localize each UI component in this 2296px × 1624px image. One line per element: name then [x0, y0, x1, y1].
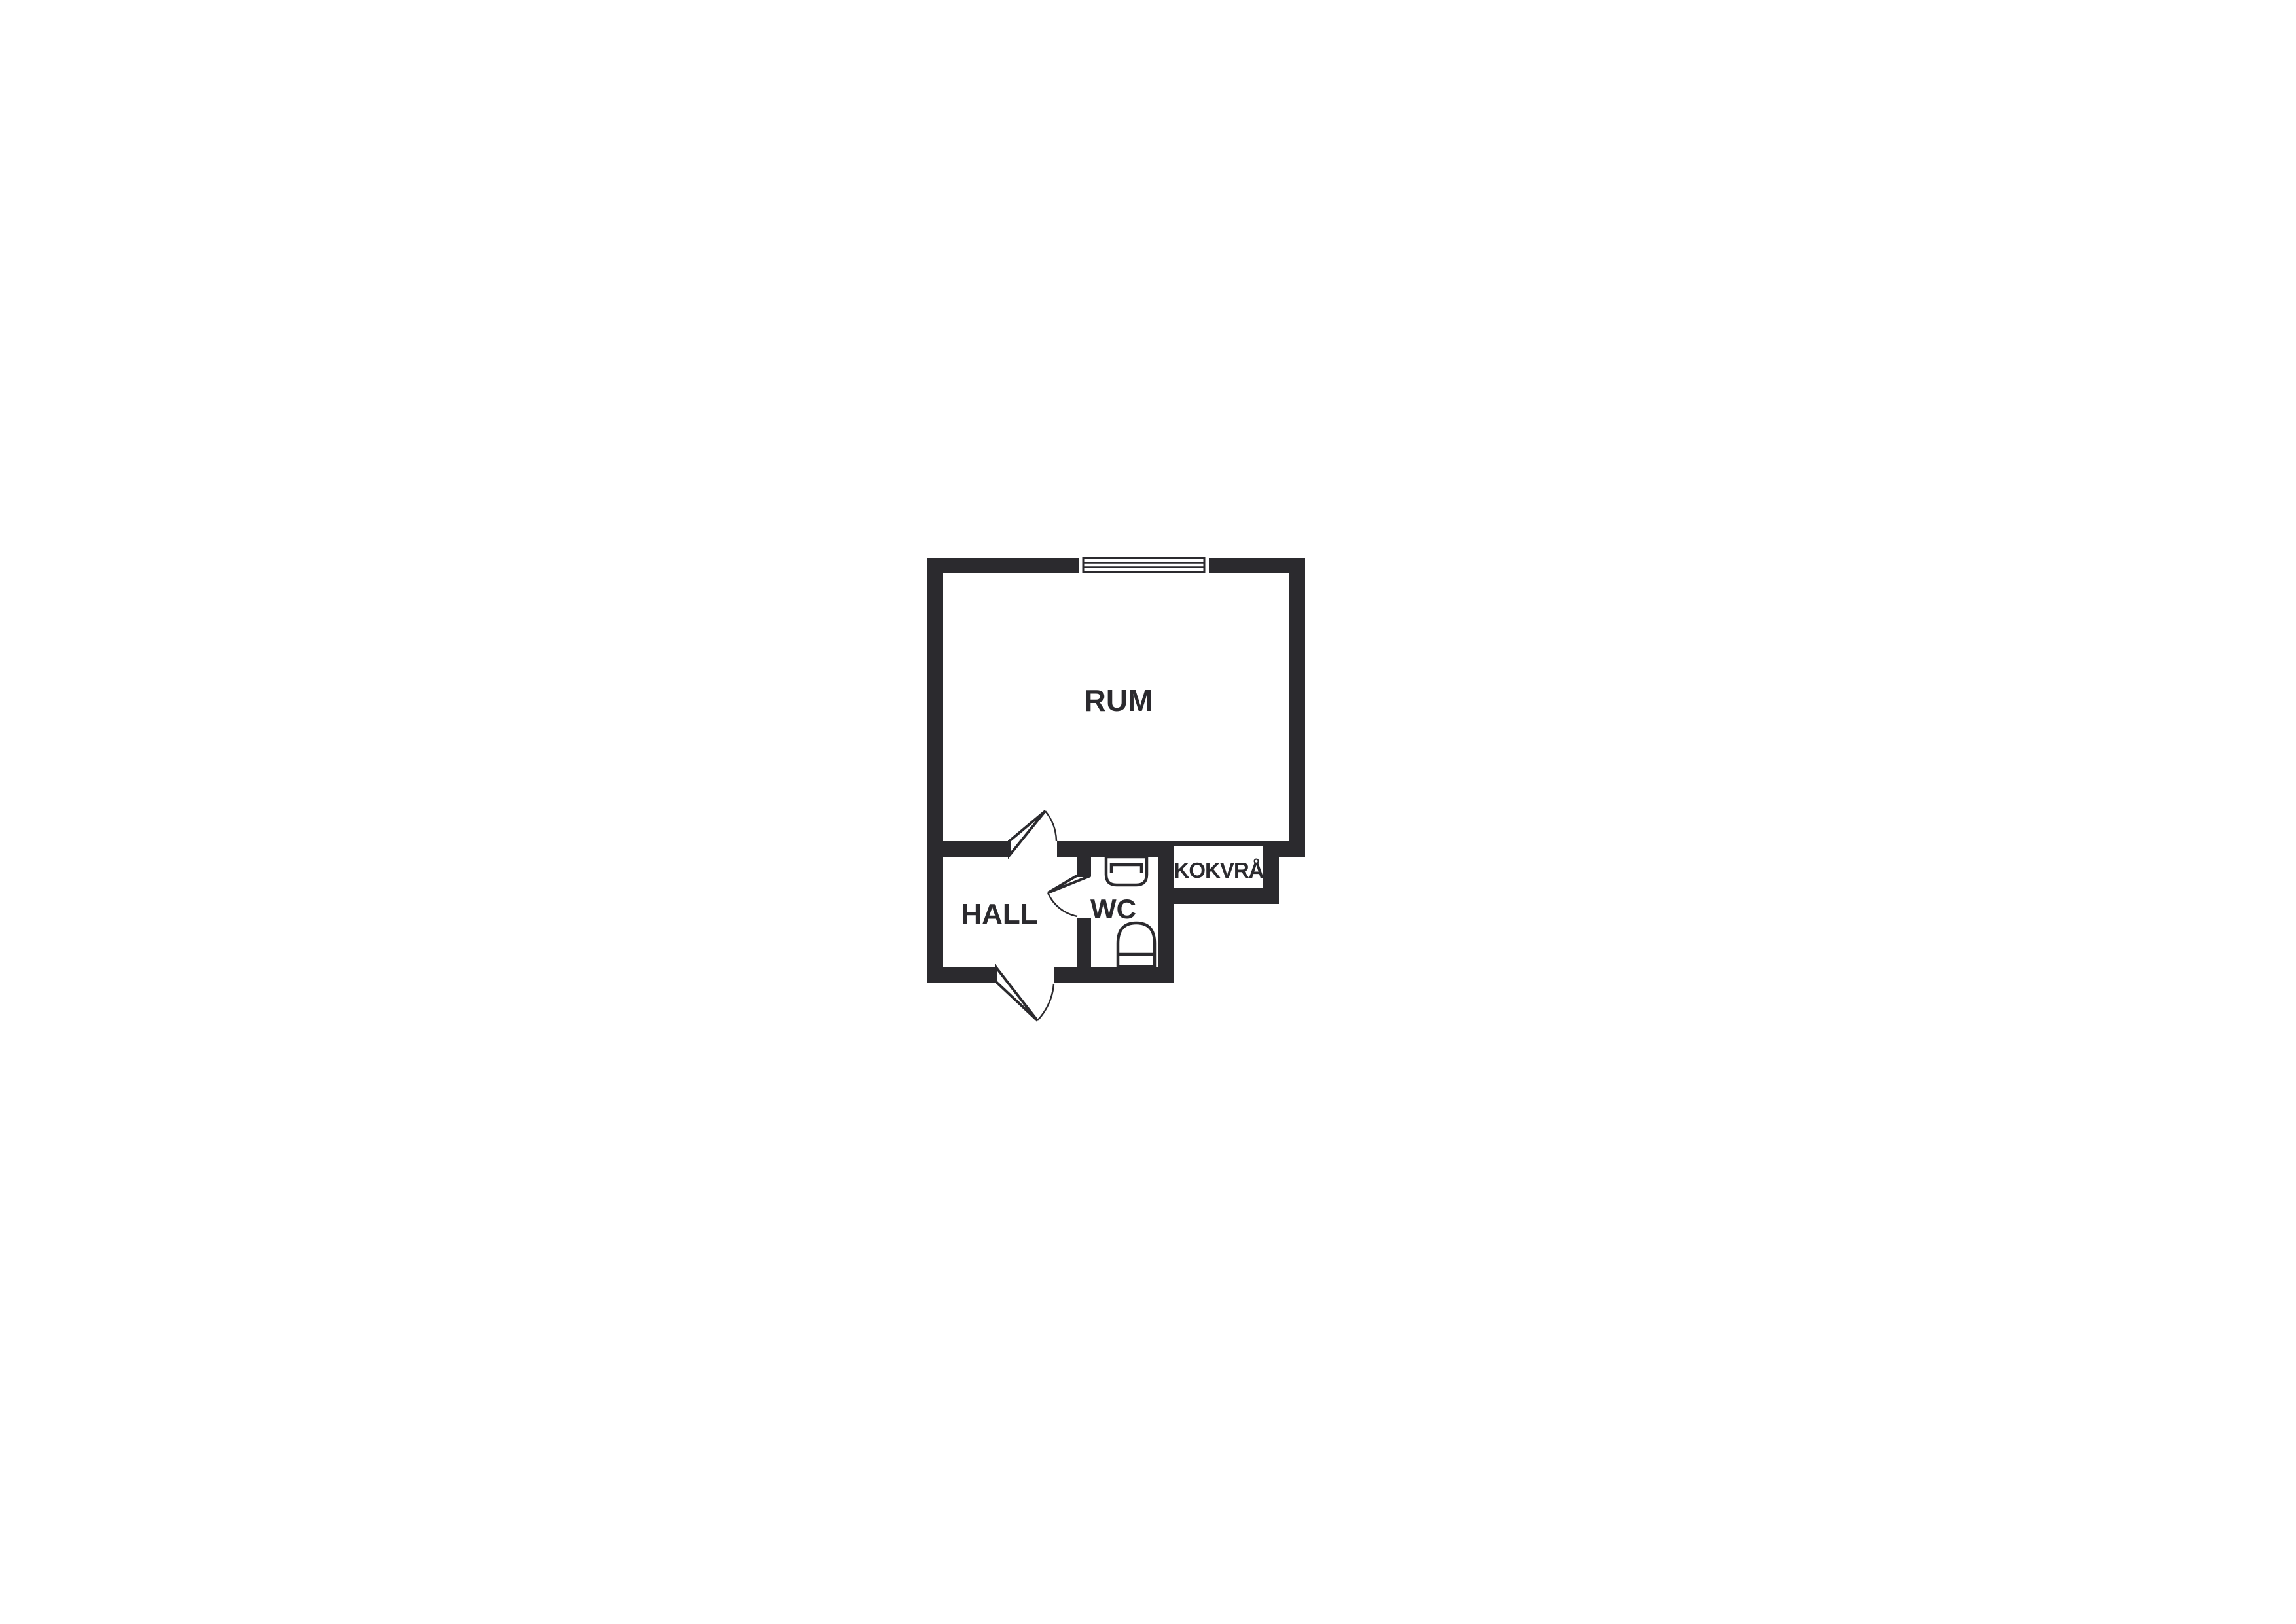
window-icon	[1083, 558, 1204, 572]
window-frame	[1083, 558, 1204, 572]
wall-right	[1289, 558, 1305, 857]
room-label-rum: RUM	[1085, 683, 1153, 717]
wall-divider-right	[1057, 841, 1158, 857]
room-label-hall: HALL	[961, 898, 1037, 930]
floor-plan-canvas: RUM HALL WC KOKVRÅ	[0, 0, 2296, 1624]
wall-kokvra-bottom	[1174, 888, 1279, 904]
toilet-bowl	[1118, 923, 1155, 967]
door-arc	[1048, 893, 1077, 916]
room-label-kokvra: KOKVRÅ	[1174, 858, 1263, 882]
floor-plan-svg: RUM HALL WC KOKVRÅ	[0, 0, 2296, 1624]
sink-icon	[1106, 857, 1147, 885]
door-arc	[1037, 984, 1054, 1020]
door-leaf	[1009, 811, 1045, 856]
door-arc	[1045, 811, 1056, 841]
wall-bottom-right	[1054, 967, 1174, 983]
wall-left	[927, 558, 943, 983]
door-leaf	[1048, 876, 1090, 893]
toilet-icon	[1118, 923, 1155, 967]
room-label-wc: WC	[1090, 893, 1136, 924]
wall-top-left	[927, 558, 1079, 573]
wall-wc-right	[1158, 841, 1174, 983]
wall-bottom-left	[927, 967, 996, 983]
wc-door-swing-icon	[1048, 876, 1090, 916]
wall-hall-wc-lower	[1077, 918, 1091, 967]
wall-divider-left	[943, 841, 1009, 857]
door-leaf	[996, 967, 1037, 1020]
wall-kokvra-top-line	[1174, 841, 1263, 846]
wall-hall-wc-upper	[1077, 857, 1091, 876]
entrance-door-swing-icon	[996, 967, 1054, 1020]
room-door-swing-icon	[1009, 811, 1056, 856]
